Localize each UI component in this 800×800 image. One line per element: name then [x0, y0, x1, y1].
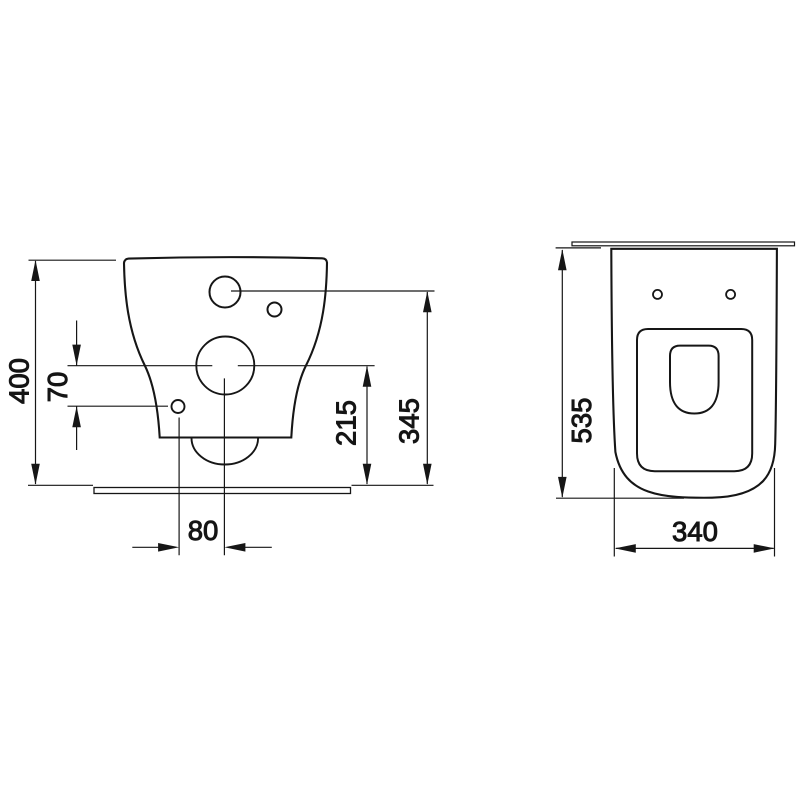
svg-text:535: 535: [566, 398, 597, 444]
svg-text:345: 345: [394, 398, 425, 444]
svg-text:215: 215: [330, 400, 361, 446]
svg-text:80: 80: [188, 515, 219, 546]
svg-text:400: 400: [3, 358, 34, 404]
svg-text:340: 340: [672, 516, 718, 547]
svg-text:70: 70: [42, 372, 73, 403]
